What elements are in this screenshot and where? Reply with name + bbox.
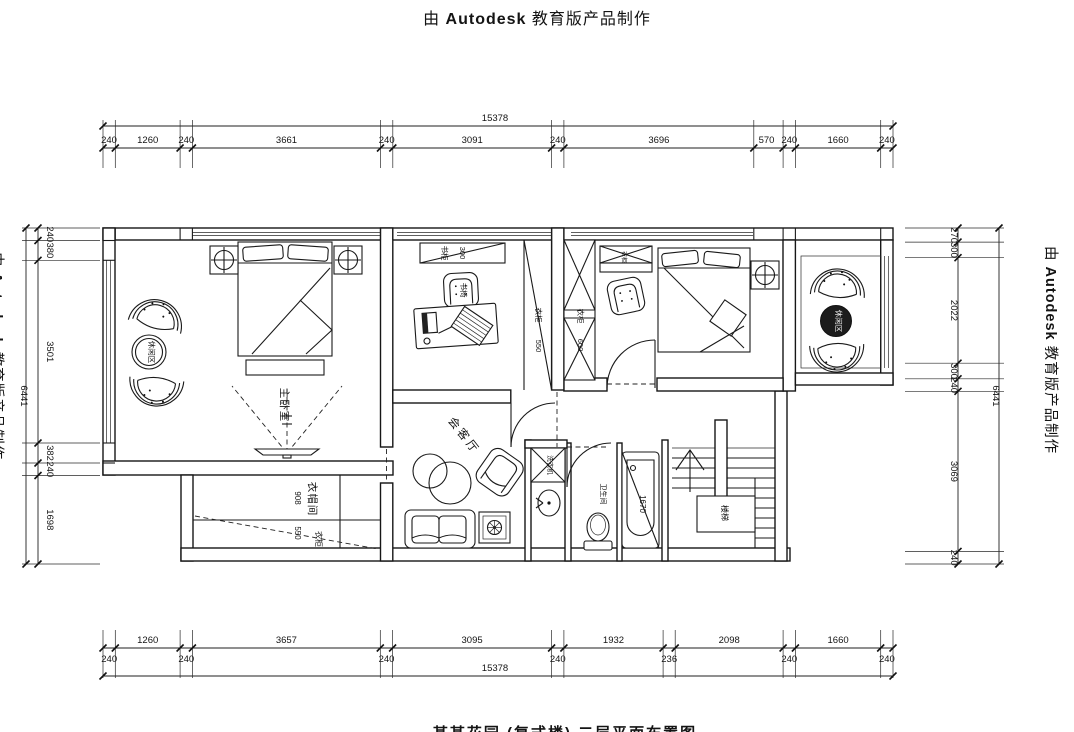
living-room: 会客厅 <box>405 414 527 548</box>
dim-label: 240 <box>101 135 117 146</box>
bookcase-depth-label: 300 <box>458 247 467 260</box>
toilet <box>584 513 612 550</box>
dim-label: 3501 <box>44 341 55 362</box>
dim-label: 2022 <box>948 300 959 321</box>
dim-label: 240 <box>879 135 895 146</box>
cloakroom: 衣帽间 908 550 衣柜 <box>293 482 324 547</box>
dim-total-left: 6441 <box>18 385 29 406</box>
dim-label: 3095 <box>462 635 483 646</box>
bathtub-length-label: 1670 <box>638 495 647 513</box>
cabinet-bedroom2-label: 衣柜 <box>620 251 628 263</box>
dim-label: 240 <box>879 654 895 665</box>
leisure-area-label: 休闲区 <box>147 341 157 364</box>
dim-label: 3091 <box>462 135 483 146</box>
leisure-area-label: 休闲区 <box>834 310 844 333</box>
pillow <box>288 245 329 262</box>
floor-plan-drawing: 休闲区 主卧室 书柜 300 书椅 <box>0 0 1074 732</box>
bathtub: 1670 <box>622 452 659 548</box>
wardrobe-bedroom2-depth: 600 <box>576 339 585 352</box>
bed-bench <box>246 360 324 375</box>
armchair <box>128 294 188 336</box>
dim-label: 3661 <box>276 135 297 146</box>
dimension-chain-left: 240 380 3501 382 240 1698 6441 <box>18 225 100 568</box>
tv-symbol <box>255 449 319 455</box>
room-label-master-bedroom: 主卧室 <box>278 388 291 423</box>
downlight-symbol <box>334 246 362 274</box>
downlight-symbol <box>751 261 779 289</box>
bookcase-label: 书柜 <box>440 246 450 261</box>
dim-label: 1932 <box>603 635 624 646</box>
dim-label: 300 <box>948 242 959 258</box>
dim-label: 240 <box>379 654 395 665</box>
side-table-flower <box>479 512 510 543</box>
second-bedroom: 衣柜 <box>600 246 779 352</box>
room-label-stairs: 楼梯 <box>720 505 730 521</box>
door-arc-bedroom2 <box>607 340 655 388</box>
armchair <box>810 267 866 299</box>
coffee-table <box>429 462 471 504</box>
wardrobe-hall-depth: 550 <box>534 340 543 353</box>
wardrobe-hall-label: 衣柜 <box>534 308 544 323</box>
dimension-chain-right: 270 300 2022 300 240 3069 240 6441 <box>905 225 1004 568</box>
pillow <box>243 245 284 262</box>
room-label-cloakroom: 衣帽间 <box>306 482 319 517</box>
master-bedroom: 休闲区 主卧室 <box>128 242 362 458</box>
cloakroom-wardrobe-label: 衣柜 <box>314 531 324 547</box>
dim-label: 240 <box>101 654 117 665</box>
downlight-symbol <box>210 246 238 274</box>
dim-label: 380 <box>44 242 55 258</box>
dim-label: 240 <box>44 461 55 477</box>
dim-label: 240 <box>44 226 55 242</box>
wardrobe-bedroom2-label: 衣柜 <box>576 309 586 324</box>
dimension-chain-bottom: 1260 3657 3095 1932 2098 1660 240 240 24… <box>100 630 897 680</box>
dim-label: 240 <box>781 135 797 146</box>
dim-label: 240 <box>178 135 194 146</box>
dimension-chain-top: 15378 240 1260 240 3661 240 3091 240 369… <box>100 113 897 168</box>
dim-total-bottom: 15378 <box>482 663 508 674</box>
balcony-leisure: 休闲区 <box>810 267 867 373</box>
coffee-table <box>413 454 447 488</box>
dim-label: 240 <box>379 135 395 146</box>
room-label-living: 会客厅 <box>445 414 483 457</box>
dim-total-top: 15378 <box>482 113 508 124</box>
dim-label: 3069 <box>948 461 959 482</box>
wardrobe-rod-dashed <box>195 516 378 549</box>
armchair <box>128 375 184 408</box>
door-arc-bathroom <box>567 443 611 487</box>
dim-label: 1698 <box>44 509 55 530</box>
dim-label: 240 <box>550 135 566 146</box>
dim-total-right: 6441 <box>990 385 1001 406</box>
dim-label: 1660 <box>828 635 849 646</box>
desk <box>414 303 499 350</box>
dim-label: 1660 <box>828 135 849 146</box>
cad-floorplan-sheet: { "banner": {"prefix": "由", "brand": "Au… <box>0 0 1074 732</box>
staircase: 楼梯 <box>672 420 775 548</box>
dim-label: 240 <box>550 654 566 665</box>
dim-label: 236 <box>661 654 677 665</box>
dim-label: 1260 <box>137 635 158 646</box>
dim-label: 240 <box>178 654 194 665</box>
dim-label: 240 <box>781 654 797 665</box>
dim-label: 382 <box>44 445 55 461</box>
cloakroom-width-label: 908 <box>293 491 302 505</box>
room-label-bathroom: 卫生间 <box>599 484 608 505</box>
washing-machine-label: 洗衣机 <box>546 455 555 475</box>
armchair <box>606 276 646 316</box>
dim-label: 3657 <box>276 635 297 646</box>
stair-stringer-wall <box>715 420 727 498</box>
study-area: 书柜 300 书椅 <box>414 243 505 350</box>
dim-label: 3696 <box>648 135 669 146</box>
dim-label: 570 <box>759 135 775 146</box>
cloakroom-wardrobe-depth: 550 <box>293 526 302 540</box>
dim-label: 1260 <box>137 135 158 146</box>
tv-sightline <box>287 386 342 453</box>
dim-label: 2098 <box>719 635 740 646</box>
bathroom-utility: 洗衣机 卫生间 1670 <box>531 448 659 550</box>
desk-chair-label: 书椅 <box>459 283 469 298</box>
sofa <box>405 510 475 548</box>
armchair <box>810 343 865 373</box>
armchair <box>473 445 527 500</box>
